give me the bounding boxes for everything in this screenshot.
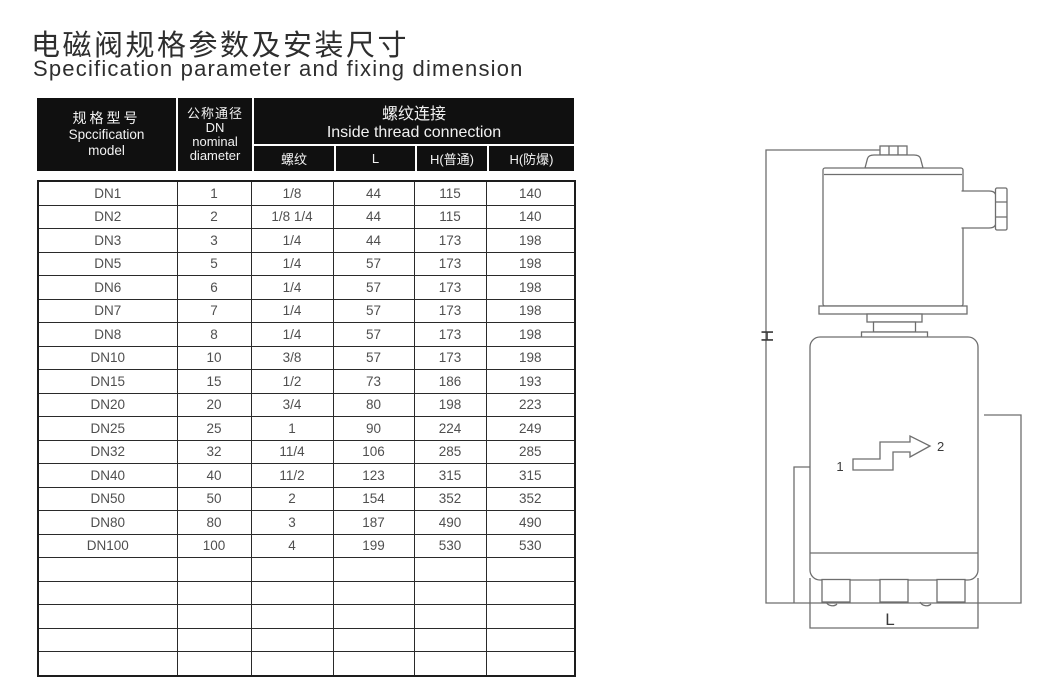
header-spec-zh: 规格型号 (73, 110, 141, 127)
table-cell: 352 (486, 487, 575, 511)
table-cell: 285 (486, 440, 575, 464)
table-cell: 40 (177, 464, 251, 488)
dimension-h-label: H (758, 330, 777, 342)
table-cell-empty (177, 652, 251, 676)
table-cell: 100 (177, 534, 251, 558)
table-cell-empty (38, 581, 177, 605)
table-cell: 115 (414, 205, 486, 229)
table-cell: 57 (333, 299, 414, 323)
table-cell: 173 (414, 229, 486, 253)
table-cell-empty (177, 581, 251, 605)
table-cell: DN32 (38, 440, 177, 464)
header-group-thread-connection: 螺纹连接 Inside thread connection 螺纹 L H(普通)… (254, 98, 574, 171)
table-cell: 3/8 (251, 346, 333, 370)
outlet-port-label: 2 (937, 439, 944, 454)
table-cell: 173 (414, 299, 486, 323)
table-cell: DN2 (38, 205, 177, 229)
table-cell: 11/2 (251, 464, 333, 488)
table-cell: 1/4 (251, 299, 333, 323)
table-cell: 15 (177, 370, 251, 394)
table-cell: DN7 (38, 299, 177, 323)
table-cell: DN20 (38, 393, 177, 417)
cable-connector (962, 191, 997, 228)
table-cell-empty (251, 605, 333, 629)
table-cell: 123 (333, 464, 414, 488)
coil-cap (865, 155, 923, 168)
valve-technical-drawing: H L 1 2 (740, 140, 1040, 640)
table-cell: 57 (333, 252, 414, 276)
table-row: DN2525190224249 (38, 417, 575, 441)
header-cell-h-normal: H(普通) (417, 146, 487, 171)
table-row-empty (38, 558, 575, 582)
table-cell: 1/4 (251, 229, 333, 253)
valve-neck-upper (867, 314, 922, 322)
header-dn-zh: 公称通径 (187, 107, 243, 121)
table-cell: 57 (333, 323, 414, 347)
coil-top-terminals (880, 146, 907, 155)
table-cell: 285 (414, 440, 486, 464)
table-cell: DN6 (38, 276, 177, 300)
table-cell: 25 (177, 417, 251, 441)
table-row: DN111/844115140 (38, 181, 575, 205)
table-cell-empty (177, 605, 251, 629)
table-cell: 10 (177, 346, 251, 370)
table-cell: 1/4 (251, 252, 333, 276)
connector-end-cap (996, 188, 1008, 230)
table-cell-empty (177, 558, 251, 582)
valve-neck-middle (874, 322, 916, 332)
table-row: DN10103/857173198 (38, 346, 575, 370)
specification-table: 规格型号 Spccification model 公称通径 DN nominal… (37, 98, 574, 677)
table-cell: 224 (414, 417, 486, 441)
table-row: DN771/457173198 (38, 299, 575, 323)
table-cell-empty (333, 605, 414, 629)
table-cell: 115 (414, 181, 486, 205)
table-cell-empty (486, 581, 575, 605)
table-cell: 3/4 (251, 393, 333, 417)
header-thread-en: Inside thread connection (327, 124, 501, 142)
valve-foot-left (822, 580, 850, 603)
table-cell: 20 (177, 393, 251, 417)
table-cell: DN50 (38, 487, 177, 511)
table-row-empty (38, 605, 575, 629)
table-cell-empty (38, 605, 177, 629)
table-row-empty (38, 652, 575, 676)
header-cell-l: L (336, 146, 415, 171)
table-cell: 352 (414, 487, 486, 511)
table-cell: 140 (486, 205, 575, 229)
table-cell-empty (486, 652, 575, 676)
table-row: DN221/8 1/444115140 (38, 205, 575, 229)
table-cell: 50 (177, 487, 251, 511)
header-dn-line4: diameter (190, 149, 241, 163)
dimension-l-label: L (885, 610, 894, 629)
table-cell: DN5 (38, 252, 177, 276)
spec-sheet-page: 电磁阀规格参数及安装尺寸 Specification parameter and… (0, 0, 1049, 681)
table-cell: DN3 (38, 229, 177, 253)
table-row: DN323211/4106285285 (38, 440, 575, 464)
table-cell: 44 (333, 181, 414, 205)
table-cell: 11/4 (251, 440, 333, 464)
table-cell-empty (251, 558, 333, 582)
table-cell: 187 (333, 511, 414, 535)
table-cell: 490 (414, 511, 486, 535)
table-cell: 32 (177, 440, 251, 464)
valve-body (810, 337, 978, 580)
table-cell-empty (333, 581, 414, 605)
table-header: 规格型号 Spccification model 公称通径 DN nominal… (37, 98, 574, 171)
table-cell-empty (414, 652, 486, 676)
table-cell: 1/4 (251, 276, 333, 300)
table-cell-empty (486, 558, 575, 582)
table-row: DN404011/2123315315 (38, 464, 575, 488)
table-cell: 198 (486, 346, 575, 370)
table-cell: 140 (486, 181, 575, 205)
table-cell-empty (486, 628, 575, 652)
table-cell: 57 (333, 346, 414, 370)
table-cell: 198 (486, 323, 575, 347)
table-cell: 530 (486, 534, 575, 558)
page-title-english: Specification parameter and fixing dimen… (33, 56, 524, 82)
table-cell: 44 (333, 205, 414, 229)
header-subrow: 螺纹 L H(普通) H(防爆) (254, 146, 574, 171)
table-cell: 173 (414, 323, 486, 347)
table-cell: 249 (486, 417, 575, 441)
table-cell: 2 (177, 205, 251, 229)
table-row: DN661/457173198 (38, 276, 575, 300)
table-cell-empty (38, 652, 177, 676)
table-cell: 198 (486, 229, 575, 253)
table-cell: DN40 (38, 464, 177, 488)
table-cell-empty (38, 628, 177, 652)
table-cell: 173 (414, 276, 486, 300)
table-cell: 1 (251, 417, 333, 441)
table-cell: 2 (251, 487, 333, 511)
table-cell: 4 (251, 534, 333, 558)
valve-foot-right (937, 580, 965, 603)
table-cell-empty (251, 581, 333, 605)
table-cell-empty (177, 628, 251, 652)
table-cell: 199 (333, 534, 414, 558)
table-cell: 173 (414, 346, 486, 370)
table-cell-empty (333, 558, 414, 582)
table-row: DN881/457173198 (38, 323, 575, 347)
table-cell: 173 (414, 252, 486, 276)
table-cell: 73 (333, 370, 414, 394)
table-cell: 315 (486, 464, 575, 488)
table-cell: 198 (486, 252, 575, 276)
table-cell: 57 (333, 276, 414, 300)
table-cell: 1/8 (251, 181, 333, 205)
table-cell: DN80 (38, 511, 177, 535)
table-cell: 80 (333, 393, 414, 417)
coil-bottom-flange (819, 306, 967, 314)
table-cell-empty (333, 628, 414, 652)
table-row: DN551/457173198 (38, 252, 575, 276)
table-cell: 1/4 (251, 323, 333, 347)
table-body: DN111/844115140DN221/8 1/444115140DN331/… (37, 180, 576, 677)
table-cell-empty (38, 558, 177, 582)
header-thread-zh: 螺纹连接 (382, 100, 446, 124)
table-row-empty (38, 581, 575, 605)
table-cell: DN1 (38, 181, 177, 205)
coil-body (823, 168, 963, 306)
header-cell-h-exproof: H(防爆) (489, 146, 574, 171)
table-cell: 8 (177, 323, 251, 347)
table-cell-empty (414, 558, 486, 582)
table-cell: 3 (251, 511, 333, 535)
table-cell-empty (251, 652, 333, 676)
table-cell: DN15 (38, 370, 177, 394)
table-cell: 6 (177, 276, 251, 300)
table-cell: 198 (486, 276, 575, 300)
table-cell: 198 (414, 393, 486, 417)
table-cell: 198 (486, 299, 575, 323)
header-spec-en1: Spccification (69, 127, 145, 143)
table-row: DN50502154352352 (38, 487, 575, 511)
table-cell-empty (251, 628, 333, 652)
table-cell-empty (414, 628, 486, 652)
table-cell-empty (414, 605, 486, 629)
header-spec-en2: model (88, 143, 125, 159)
table-cell-empty (333, 652, 414, 676)
table-cell-empty (414, 581, 486, 605)
table-cell: DN25 (38, 417, 177, 441)
header-thread-group-label: 螺纹连接 Inside thread connection (254, 98, 574, 144)
table-cell: 5 (177, 252, 251, 276)
table-cell: 106 (333, 440, 414, 464)
table-cell: 193 (486, 370, 575, 394)
table-row: DN80803187490490 (38, 511, 575, 535)
header-cell-nominal-diameter: 公称通径 DN nominal diameter (178, 98, 252, 171)
table-cell: 186 (414, 370, 486, 394)
table-cell: 1/2 (251, 370, 333, 394)
table-cell: 1/8 1/4 (251, 205, 333, 229)
table-cell: 80 (177, 511, 251, 535)
header-dn-line2: DN (206, 121, 225, 135)
table-cell: 315 (414, 464, 486, 488)
table-row: DN1001004199530530 (38, 534, 575, 558)
table-cell: 3 (177, 229, 251, 253)
table-cell: 530 (414, 534, 486, 558)
table-cell: 154 (333, 487, 414, 511)
table-cell: 7 (177, 299, 251, 323)
header-cell-thread: 螺纹 (254, 146, 334, 171)
table-cell: 1 (177, 181, 251, 205)
table-row: DN15151/273186193 (38, 370, 575, 394)
table-cell: DN10 (38, 346, 177, 370)
table-row: DN20203/480198223 (38, 393, 575, 417)
table-row-empty (38, 628, 575, 652)
table-cell: DN8 (38, 323, 177, 347)
header-cell-specification-model: 规格型号 Spccification model (37, 98, 176, 171)
header-dn-line3: nominal (192, 135, 238, 149)
valve-foot-center (880, 580, 908, 603)
table-row: DN331/444173198 (38, 229, 575, 253)
table-cell-empty (486, 605, 575, 629)
table-cell: DN100 (38, 534, 177, 558)
table-cell: 490 (486, 511, 575, 535)
table-cell: 90 (333, 417, 414, 441)
inlet-port-label: 1 (836, 459, 843, 474)
table-cell: 44 (333, 229, 414, 253)
table-cell: 223 (486, 393, 575, 417)
